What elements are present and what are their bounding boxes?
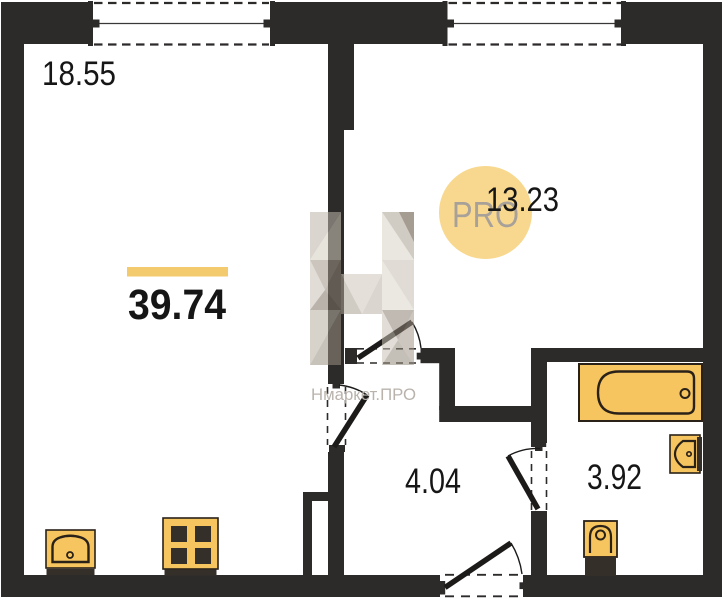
svg-text:3.92: 3.92 [587, 458, 642, 497]
svg-text:Нмаркет.ПРО: Нмаркет.ПРО [311, 385, 416, 404]
svg-text:39.74: 39.74 [128, 281, 226, 329]
svg-text:13.23: 13.23 [486, 181, 559, 219]
svg-text:4.04: 4.04 [405, 462, 461, 501]
svg-text:18.55: 18.55 [42, 55, 116, 93]
